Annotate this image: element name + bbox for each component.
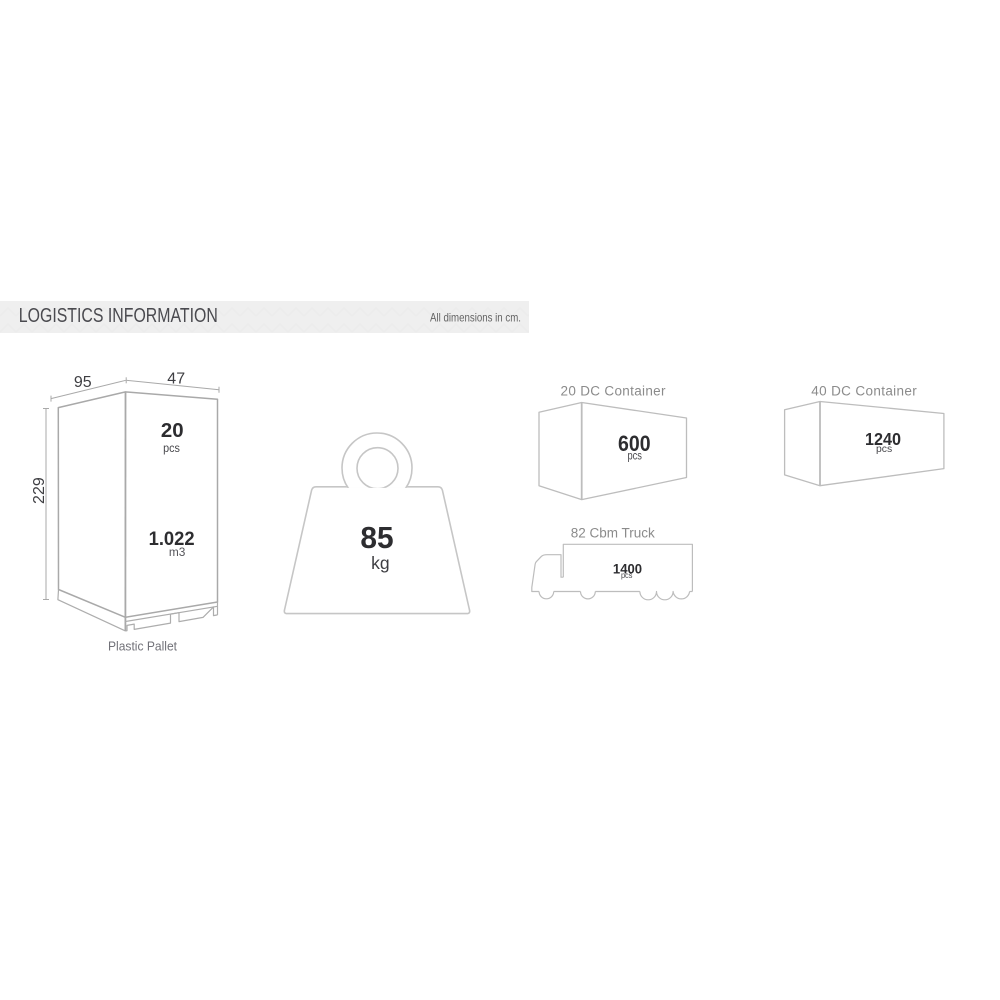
svg-text:pcs: pcs xyxy=(621,571,633,580)
svg-text:20: 20 xyxy=(161,420,184,442)
svg-text:Plastic Pallet: Plastic Pallet xyxy=(108,638,177,653)
svg-text:82 Cbm Truck: 82 Cbm Truck xyxy=(571,526,655,541)
svg-text:kg: kg xyxy=(371,553,389,573)
svg-text:229: 229 xyxy=(31,477,48,504)
svg-text:40 DC Container: 40 DC Container xyxy=(811,384,917,399)
svg-text:pcs: pcs xyxy=(627,450,642,462)
svg-text:95: 95 xyxy=(74,374,92,391)
svg-text:LOGISTICS INFORMATION: LOGISTICS INFORMATION xyxy=(19,305,218,327)
svg-text:All dimensions in cm.: All dimensions in cm. xyxy=(430,311,521,325)
svg-text:m3: m3 xyxy=(169,547,186,559)
svg-text:47: 47 xyxy=(167,371,185,388)
svg-text:pcs: pcs xyxy=(163,443,180,455)
svg-text:85: 85 xyxy=(360,520,393,555)
svg-text:pcs: pcs xyxy=(876,443,892,455)
svg-text:20 DC Container: 20 DC Container xyxy=(561,384,667,399)
